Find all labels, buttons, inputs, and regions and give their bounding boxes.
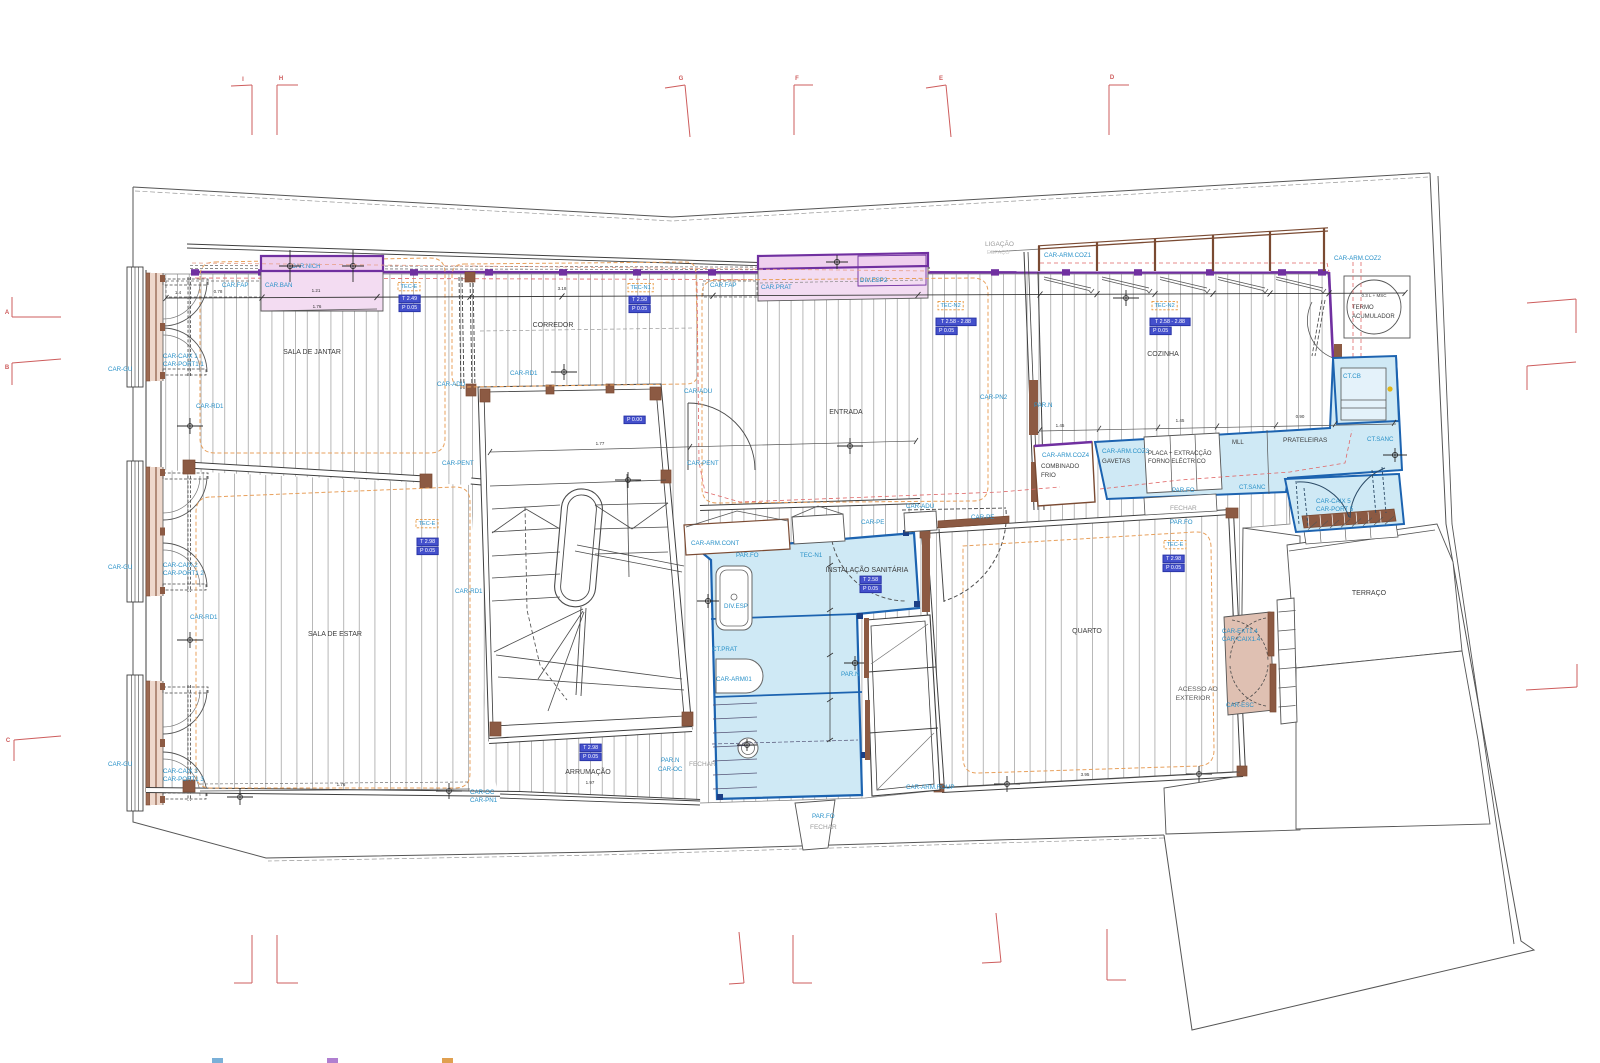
svg-text:ENTRADA: ENTRADA [829, 409, 863, 416]
svg-text:3.18: 3.18 [558, 286, 567, 291]
svg-text:CAR-ADU: CAR-ADU [437, 381, 465, 388]
svg-text:CAR-OC: CAR-OC [658, 766, 683, 773]
svg-text:1.97: 1.97 [586, 780, 595, 785]
svg-text:FECHAR: FECHAR [689, 761, 716, 768]
svg-text:TEC-E: TEC-E [419, 521, 436, 527]
svg-text:1.76: 1.76 [337, 782, 346, 787]
svg-text:CAR-RD1: CAR-RD1 [190, 614, 218, 621]
svg-text:1.45: 1.45 [1176, 418, 1185, 423]
svg-text:CAR-PENT: CAR-PENT [687, 460, 719, 467]
svg-text:P 0.05: P 0.05 [939, 328, 954, 334]
svg-text:CAR-PORT1 3: CAR-PORT1 3 [163, 776, 204, 783]
svg-text:0.78: 0.78 [214, 289, 223, 294]
svg-text:T 2.98: T 2.98 [420, 539, 435, 545]
svg-text:1.4: 1.4 [175, 290, 182, 295]
svg-text:COZINHA: COZINHA [1147, 351, 1179, 358]
svg-text:CAR-ESC: CAR-ESC [1226, 702, 1254, 709]
svg-text:P 0.05: P 0.05 [583, 754, 598, 760]
svg-text:C: C [6, 738, 11, 744]
svg-text:CT.SANC: CT.SANC [1239, 484, 1266, 491]
svg-text:CAR-ARM.ROUP: CAR-ARM.ROUP [906, 784, 954, 791]
svg-text:TEC-N2: TEC-N2 [940, 303, 960, 309]
svg-text:TEC-N1: TEC-N1 [800, 552, 823, 559]
svg-text:TERMO: TERMO [1352, 305, 1374, 311]
svg-text:0.90: 0.90 [1296, 414, 1305, 419]
svg-text:CAR-PN2: CAR-PN2 [980, 394, 1008, 401]
svg-text:CAR-EXT1.4: CAR-EXT1.4 [1222, 628, 1258, 635]
svg-text:T 2.58 - 2.88: T 2.58 - 2.88 [941, 319, 971, 325]
svg-text:CAR-ARM.COZ2: CAR-ARM.COZ2 [1334, 255, 1382, 262]
svg-text:3.95: 3.95 [1081, 772, 1090, 777]
svg-text:FORNO ELÉCTRICO: FORNO ELÉCTRICO [1148, 458, 1206, 465]
svg-text:CAR-ARM01: CAR-ARM01 [716, 676, 752, 683]
svg-text:T 2.58 - 2.88: T 2.58 - 2.88 [1155, 319, 1185, 325]
svg-text:CAR-PORT1 1: CAR-PORT1 1 [163, 361, 204, 368]
svg-text:D: D [1110, 75, 1115, 81]
svg-text:P 0.05: P 0.05 [1166, 565, 1181, 571]
svg-text:P 0.05: P 0.05 [420, 548, 435, 554]
svg-text:PAR.N: PAR.N [1034, 402, 1052, 409]
svg-text:CAR-GU: CAR-GU [108, 366, 132, 373]
svg-text:1.45: 1.45 [1056, 423, 1065, 428]
svg-text:G: G [679, 76, 684, 82]
svg-text:FECHAR: FECHAR [1170, 505, 1197, 512]
svg-text:CAR-PN1: CAR-PN1 [470, 797, 498, 804]
svg-text:CAR-ADU: CAR-ADU [906, 503, 934, 510]
svg-text:1.21: 1.21 [312, 288, 321, 293]
svg-text:CAR-PE: CAR-PE [861, 519, 884, 526]
svg-text:B: B [5, 365, 10, 371]
svg-text:T 2.58: T 2.58 [863, 577, 878, 583]
svg-text:CT.CB: CT.CB [1343, 373, 1361, 380]
svg-text:CAR-ARM.COZ4: CAR-ARM.COZ4 [1042, 452, 1090, 459]
svg-text:CAR.PRAT: CAR.PRAT [761, 284, 792, 291]
svg-text:P 0.05: P 0.05 [863, 586, 878, 592]
svg-text:T 2.49: T 2.49 [402, 296, 417, 302]
svg-text:ACESSO AO: ACESSO AO [1178, 686, 1218, 693]
svg-text:CAR-PORT 5: CAR-PORT 5 [1316, 506, 1354, 513]
svg-text:QUARTO: QUARTO [1072, 628, 1102, 635]
svg-text:T 2.98: T 2.98 [1166, 556, 1181, 562]
svg-text:CAR.NICH: CAR.NICH [291, 264, 320, 270]
svg-text:INSTALAÇÃO SANITÁRIA: INSTALAÇÃO SANITÁRIA [826, 565, 909, 574]
svg-text:PLACA + EXTRACÇÃO: PLACA + EXTRACÇÃO [1148, 450, 1212, 457]
svg-text:0.3 L + MSC: 0.3 L + MSC [1362, 293, 1388, 298]
svg-text:CAR-ADU: CAR-ADU [684, 388, 712, 395]
svg-text:P 0.05: P 0.05 [632, 306, 647, 312]
svg-text:T 2.98: T 2.98 [583, 745, 598, 751]
svg-text:CAR.FAP: CAR.FAP [222, 282, 248, 289]
svg-text:PAR.N: PAR.N [661, 757, 679, 764]
svg-text:CT.SANC: CT.SANC [1367, 436, 1394, 443]
svg-text:PAR.N: PAR.N [841, 671, 859, 678]
svg-text:EXTERIOR: EXTERIOR [1176, 695, 1211, 702]
svg-text:1.76: 1.76 [313, 304, 322, 309]
svg-text:CAR-GU: CAR-GU [108, 564, 132, 571]
svg-text:SALA DE ESTAR: SALA DE ESTAR [308, 631, 362, 638]
svg-text:CAR-RD1: CAR-RD1 [455, 588, 483, 595]
svg-text:DIV.ESP2: DIV.ESP2 [860, 277, 888, 284]
svg-text:TEC-E: TEC-E [1167, 542, 1184, 548]
svg-text:CAR-CAIX 5: CAR-CAIX 5 [1316, 498, 1351, 505]
svg-text:P 0.05: P 0.05 [1153, 328, 1168, 334]
svg-text:CAR-CAIX 3: CAR-CAIX 3 [163, 768, 198, 775]
svg-text:TERRAÇO: TERRAÇO [1352, 590, 1387, 597]
svg-text:SALA DE JANTAR: SALA DE JANTAR [283, 349, 341, 356]
svg-text:PAR.FO: PAR.FO [1170, 519, 1193, 526]
svg-text:CAR-ARM.COZ1: CAR-ARM.COZ1 [1044, 252, 1092, 259]
svg-text:CAR-PORT1 2: CAR-PORT1 2 [163, 570, 204, 577]
svg-text:CAR-RD1: CAR-RD1 [196, 403, 224, 410]
svg-text:PAR.FO: PAR.FO [812, 813, 835, 820]
svg-text:CAR-ARM.COZ3: CAR-ARM.COZ3 [1102, 448, 1150, 455]
svg-text:CAR-CAIX 1: CAR-CAIX 1 [163, 353, 198, 360]
svg-text:CAR.FAP: CAR.FAP [710, 282, 736, 289]
svg-text:FRIO: FRIO [1041, 472, 1056, 479]
svg-text:CAR-CAIX 2: CAR-CAIX 2 [163, 562, 198, 569]
svg-text:CAR-CAIX1.4: CAR-CAIX1.4 [1222, 636, 1261, 643]
svg-text:PRATELEIRAS: PRATELEIRAS [1283, 437, 1328, 444]
svg-text:CAR-RD1: CAR-RD1 [510, 370, 538, 377]
svg-text:DIV.ESP: DIV.ESP [724, 603, 748, 610]
svg-text:CAR-GU: CAR-GU [108, 761, 132, 768]
svg-text:MLL: MLL [1232, 440, 1244, 446]
svg-text:ESPAÇO: ESPAÇO [987, 250, 1010, 256]
svg-text:TEC-E: TEC-E [401, 284, 418, 290]
svg-text:LIGAÇÃO: LIGAÇÃO [985, 239, 1014, 248]
svg-text:CAR.BAN: CAR.BAN [265, 282, 293, 289]
svg-text:FECHAR: FECHAR [810, 824, 837, 831]
svg-text:P 0.05: P 0.05 [402, 305, 417, 311]
svg-text:PAR.FO: PAR.FO [736, 552, 759, 559]
svg-text:A: A [5, 310, 10, 316]
svg-text:ACUMULADOR: ACUMULADOR [1352, 314, 1395, 320]
svg-text:1.77: 1.77 [596, 441, 605, 446]
svg-text:GAVETAS: GAVETAS [1102, 458, 1130, 465]
svg-text:CAR-OC: CAR-OC [470, 789, 495, 796]
svg-text:CORREDOR: CORREDOR [533, 322, 574, 329]
svg-text:CAR-PENT: CAR-PENT [442, 460, 474, 467]
svg-text:CT.PRAT: CT.PRAT [712, 646, 738, 653]
svg-text:H: H [279, 76, 283, 82]
svg-text:CAR-ARM.CONT: CAR-ARM.CONT [691, 540, 739, 547]
svg-text:T 2.58: T 2.58 [632, 297, 647, 303]
svg-text:ARRUMAÇÃO: ARRUMAÇÃO [565, 767, 611, 776]
svg-text:F: F [795, 76, 799, 82]
svg-text:CAR-PE: CAR-PE [971, 514, 994, 521]
svg-text:TEC-N1: TEC-N1 [630, 285, 650, 291]
svg-text:COMBINADO: COMBINADO [1041, 463, 1079, 470]
svg-text:PAR.FO: PAR.FO [1172, 487, 1195, 494]
svg-text:P 0.00: P 0.00 [627, 417, 642, 423]
svg-text:TEC-N2: TEC-N2 [1154, 303, 1174, 309]
svg-text:E: E [939, 76, 943, 82]
